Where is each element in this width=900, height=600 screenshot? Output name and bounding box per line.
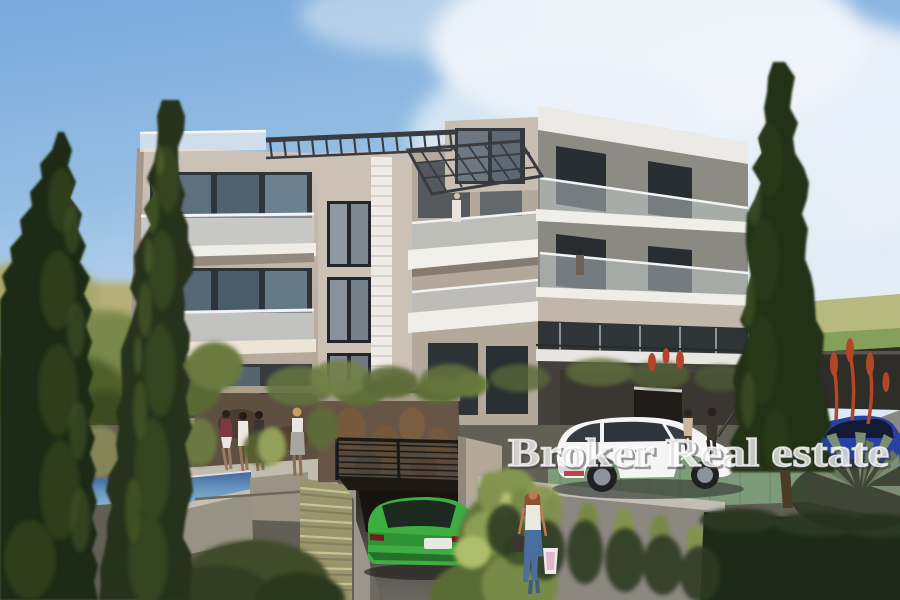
svg-text:Broker Real estate: Broker Real estate xyxy=(508,430,889,475)
